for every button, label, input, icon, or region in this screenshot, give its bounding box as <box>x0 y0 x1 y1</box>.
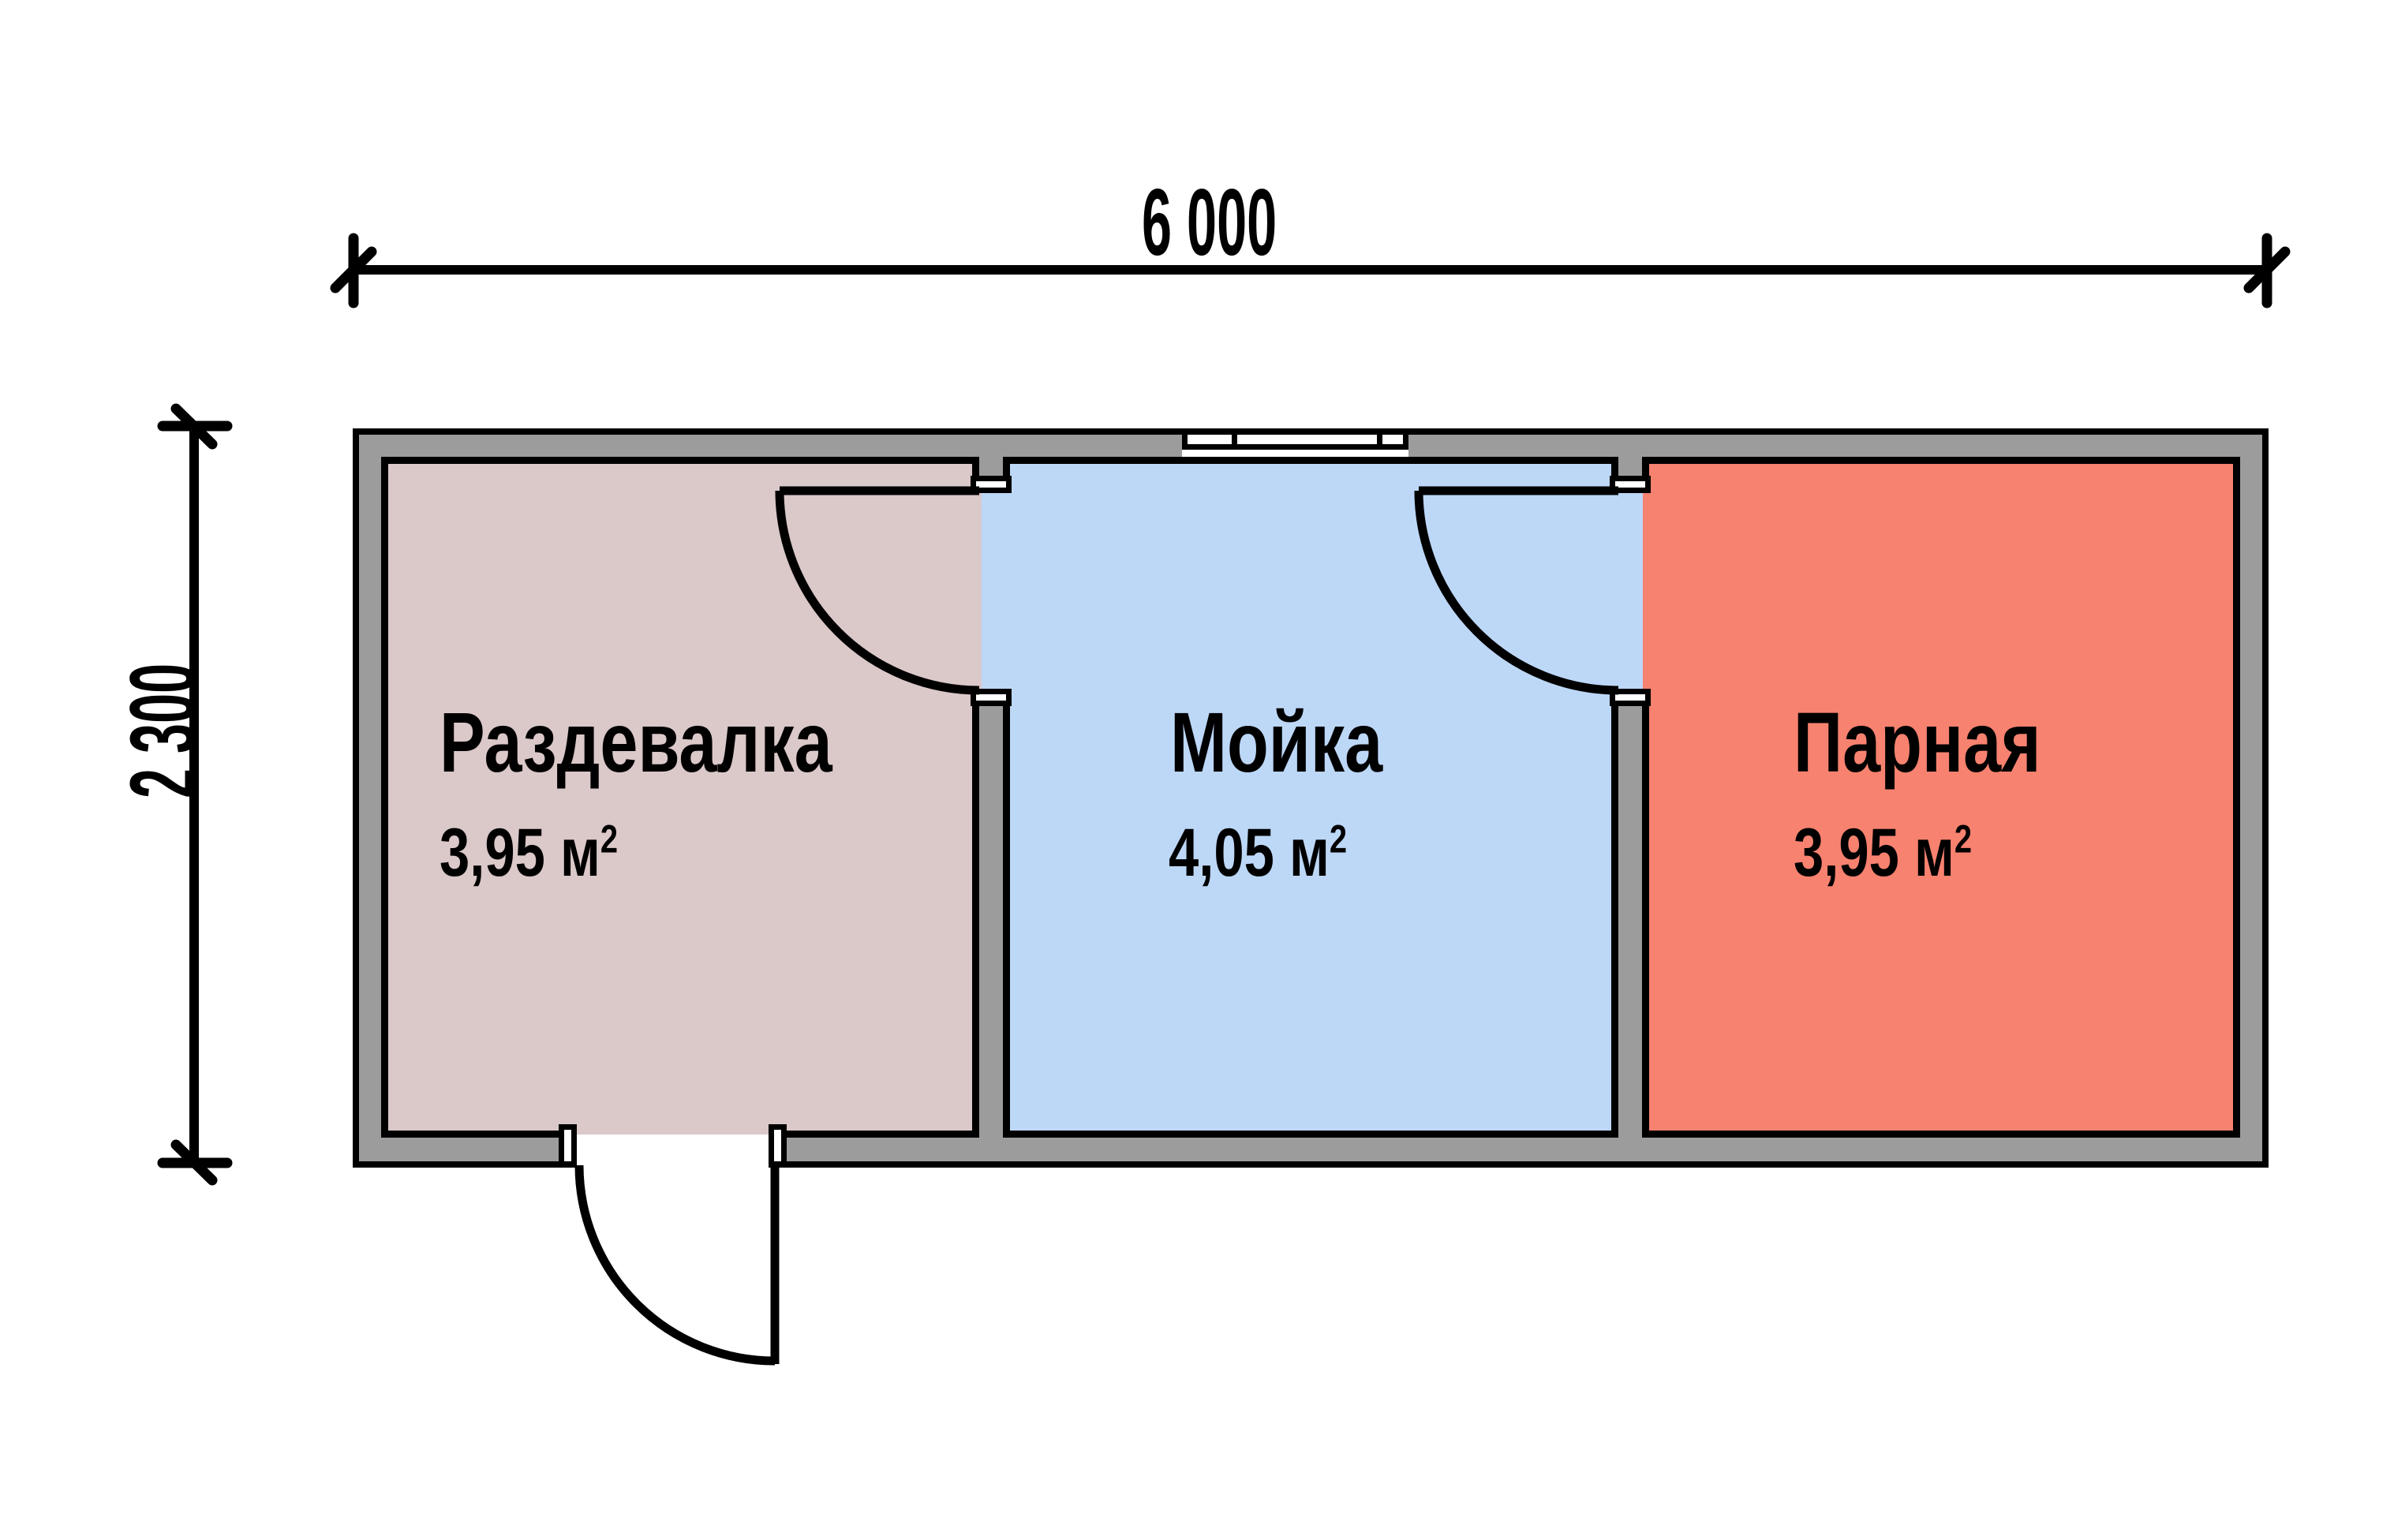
dimension-width-label: 6 000 <box>1142 175 1277 270</box>
floor-plan: Раздевалка 3,95 м2 Мойка 4,05 м2 Парная … <box>0 0 2394 1540</box>
room-label-razdevalka: Раздевалка <box>440 700 832 785</box>
area-sup: 2 <box>1954 817 1972 861</box>
room-area-parnaya: 3,95 м2 <box>1794 819 1972 887</box>
room-area-razdevalka: 3,95 м2 <box>440 819 618 887</box>
door-swing-arc <box>780 491 979 690</box>
room-label-parnaya: Парная <box>1794 700 2041 785</box>
room-label-moyka: Мойка <box>1170 700 1382 785</box>
door-swing-arc <box>579 1165 775 1361</box>
area-value: 4,05 м <box>1169 815 1330 891</box>
room-area-moyka: 4,05 м2 <box>1169 819 1347 887</box>
area-sup: 2 <box>1330 817 1347 861</box>
area-value: 3,95 м <box>1794 815 1954 891</box>
door-swing-arc <box>1419 491 1618 690</box>
area-value: 3,95 м <box>440 815 600 891</box>
dimension-height-label: 2 300 <box>116 663 211 798</box>
area-sup: 2 <box>600 817 618 861</box>
